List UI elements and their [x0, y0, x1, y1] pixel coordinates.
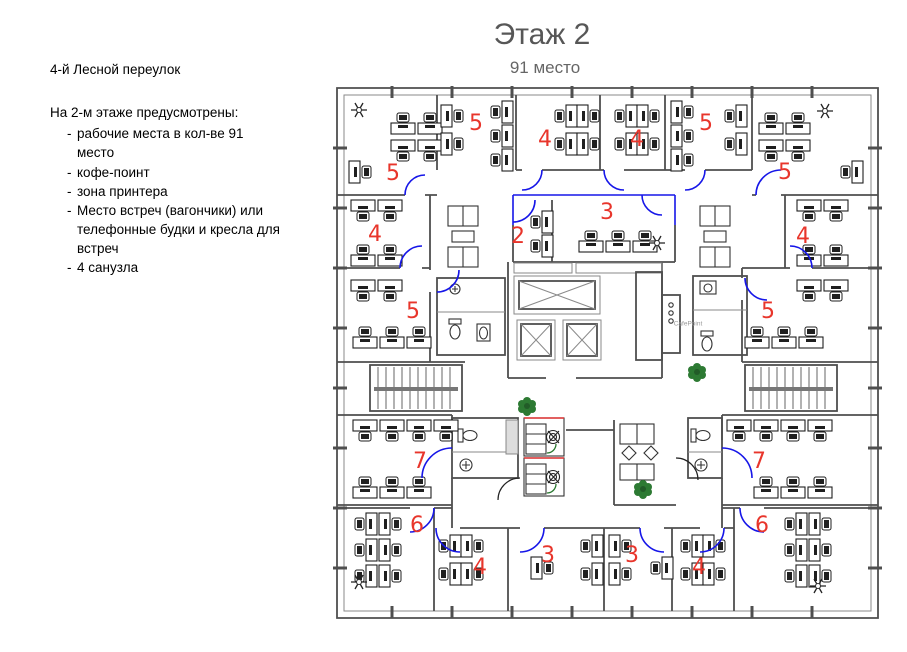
stairs-right: [745, 365, 837, 411]
zone-count-left-mid: 5: [406, 301, 420, 323]
floorplan-page: Этаж 2 91 место 4-й Лесной переулок На 2…: [0, 0, 907, 652]
wc-upper-right: [693, 276, 747, 355]
zone-count-bottom-3r: 3: [625, 545, 639, 567]
zone-count-bottom-4l: 4: [473, 557, 487, 579]
zone-count-right-side: 4: [796, 226, 810, 248]
phone-booths: [506, 418, 564, 496]
zone-count-top-a: 5: [469, 113, 483, 135]
elevators: [514, 272, 662, 360]
zone-count-lower-right: 7: [752, 451, 766, 473]
zone-count-top-right-corner: 5: [778, 162, 792, 184]
zone-count-bottom-left: 6: [410, 515, 424, 537]
zone-count-top-d: 5: [699, 113, 713, 135]
meeting-nook: [620, 424, 658, 480]
lounge-right: [700, 206, 730, 267]
zone-count-top-c: 4: [630, 129, 644, 151]
zone-count-meeting-2: 2: [511, 226, 525, 248]
zone-count-top-left-corner: 5: [386, 163, 400, 185]
zone-count-top-b: 4: [538, 129, 552, 151]
lounge-left: [448, 206, 478, 267]
zone-count-lower-left: 7: [413, 451, 427, 473]
zone-count-right-mid: 5: [761, 301, 775, 323]
zone-count-bottom-right: 6: [755, 515, 769, 537]
stairs-left: [370, 365, 462, 411]
zone-count-meeting-3: 3: [600, 202, 614, 224]
door-arcs: [400, 170, 812, 552]
cafepoint-label: CafePoint: [674, 321, 703, 328]
zone-count-left-side: 4: [368, 224, 382, 246]
outer-walls: [333, 86, 882, 618]
zone-count-bottom-3l: 3: [541, 545, 555, 567]
wc-lower-right: [688, 418, 722, 478]
floorplan-drawing: [0, 0, 907, 652]
zone-count-bottom-4r: 4: [692, 557, 706, 579]
